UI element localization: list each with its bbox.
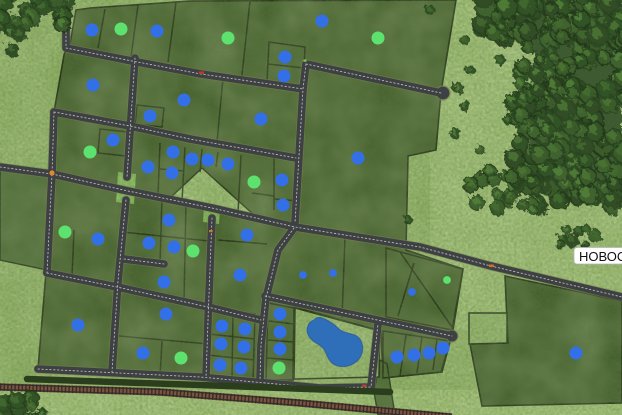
svg-text:НОВОСЕ: НОВОСЕ bbox=[579, 249, 622, 264]
